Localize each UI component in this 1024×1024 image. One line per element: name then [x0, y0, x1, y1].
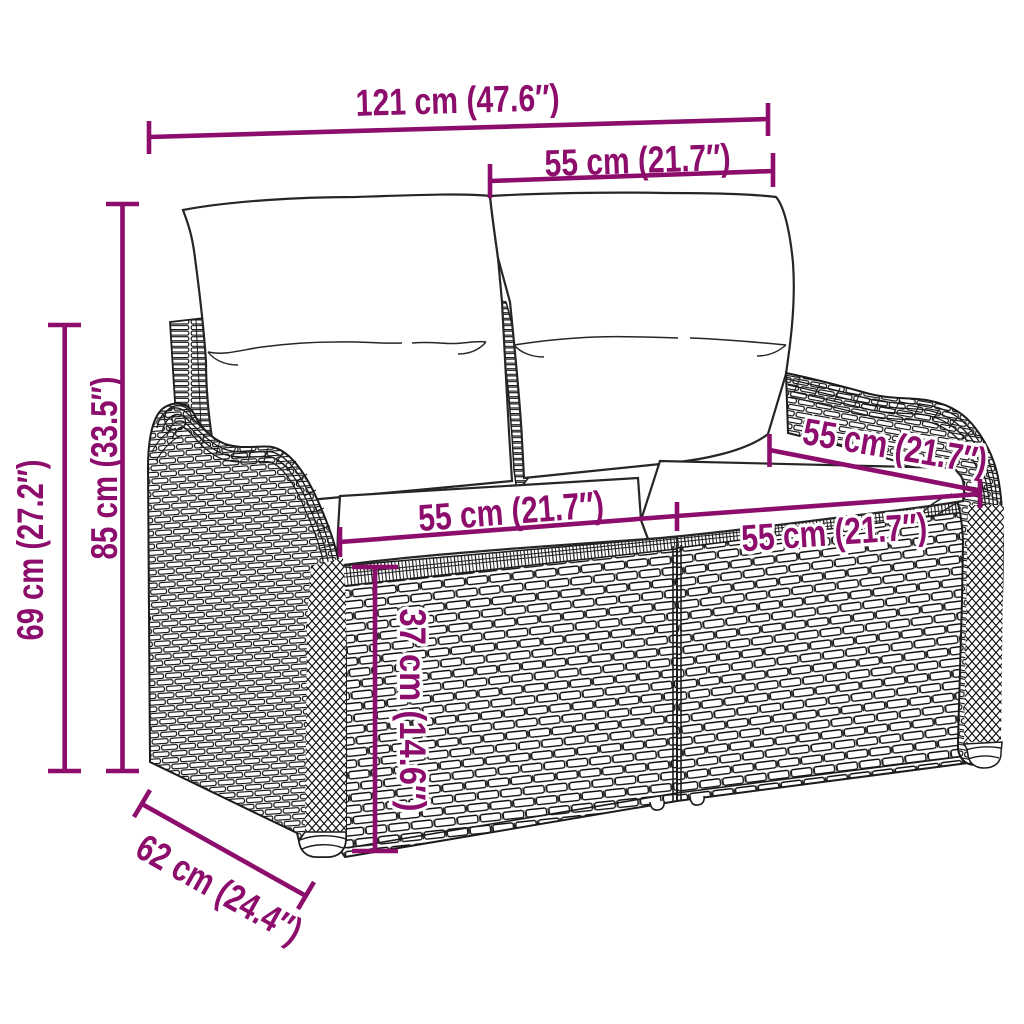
svg-text:121 cm (47.6″): 121 cm (47.6″) [355, 76, 560, 124]
svg-text:69 cm (27.2″): 69 cm (27.2″) [9, 460, 51, 641]
svg-text:85 cm (33.5″): 85 cm (33.5″) [83, 377, 125, 560]
svg-text:37 cm (14.6″): 37 cm (14.6″) [392, 609, 434, 812]
